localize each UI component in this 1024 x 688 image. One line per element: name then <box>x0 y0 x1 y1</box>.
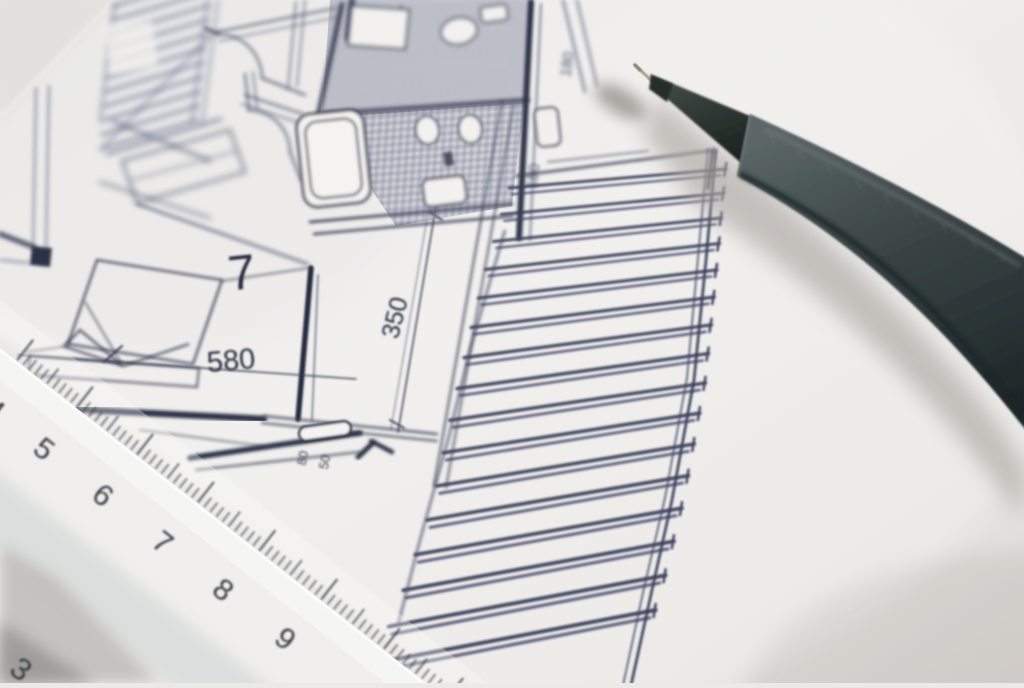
svg-text:580: 580 <box>206 343 257 379</box>
svg-text:7: 7 <box>225 245 258 302</box>
svg-text:80: 80 <box>294 449 311 466</box>
svg-text:50: 50 <box>316 453 333 470</box>
svg-text:180: 180 <box>557 51 577 78</box>
